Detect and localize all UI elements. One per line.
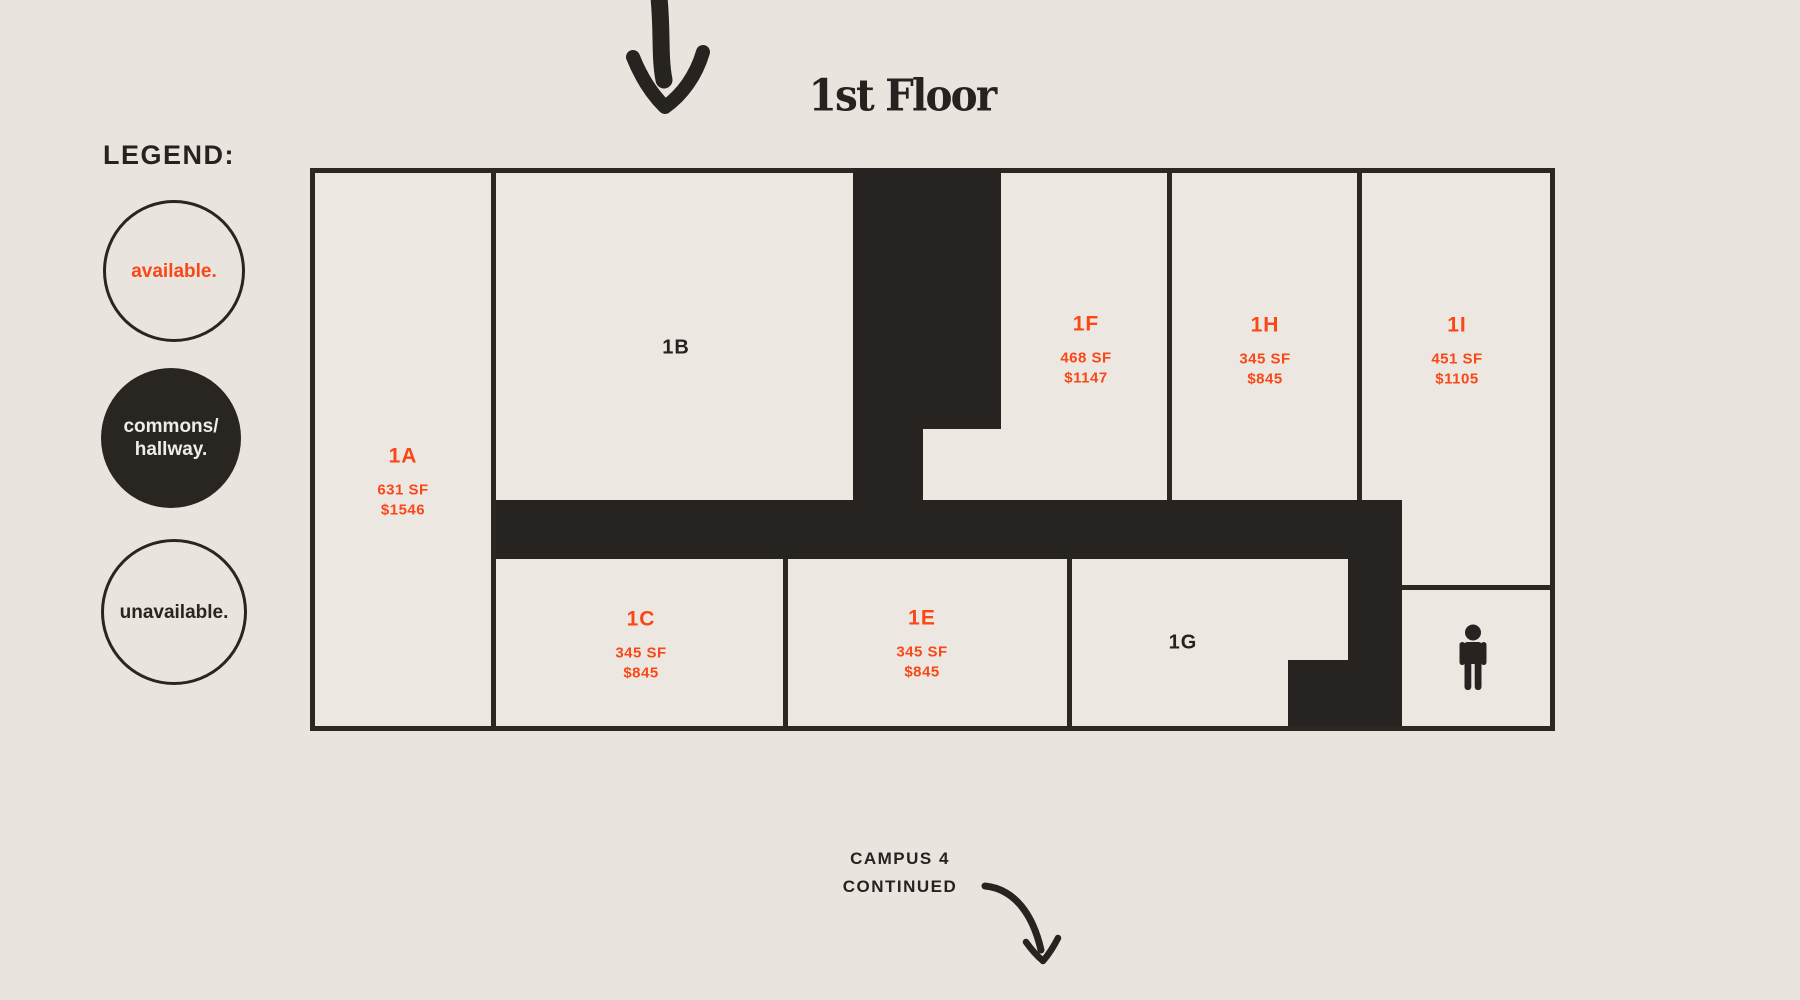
room-1g-id: 1G xyxy=(1169,632,1198,654)
room-label-1b: 1B xyxy=(662,337,690,360)
room-1f-id: 1F xyxy=(1060,313,1111,337)
legend-commons-line1: commons/ xyxy=(123,415,218,438)
legend-heading: LEGEND: xyxy=(103,140,235,171)
footer-line2: CONTINUED xyxy=(843,873,958,901)
room-1e-sf: 345 SF xyxy=(896,643,947,663)
floor-plan-page: 1st Floor LEGEND: available. commons/ ha… xyxy=(0,0,1800,1000)
room-1a-id: 1A xyxy=(377,445,428,469)
wall-1f-1h xyxy=(1167,168,1172,501)
hallway-notch-1g xyxy=(1288,660,1348,726)
room-1f-price: $1147 xyxy=(1060,368,1111,388)
room-1a-price: $1546 xyxy=(377,500,428,520)
wall-1e-1g xyxy=(1067,553,1072,726)
room-label-1e: 1E 345 SF $845 xyxy=(896,607,947,682)
room-1f-sf: 468 SF xyxy=(1060,349,1111,369)
hallway-vertical-narrow xyxy=(853,423,923,503)
room-1i-id: 1I xyxy=(1431,314,1482,338)
wall-1c-1e xyxy=(783,553,788,726)
page-title: 1st Floor xyxy=(809,71,996,122)
footer-line1: CAMPUS 4 xyxy=(843,845,958,873)
room-1i-price: $1105 xyxy=(1431,369,1482,389)
wall-1h-1i xyxy=(1357,168,1362,501)
legend-available-label: available. xyxy=(131,260,217,283)
legend-item-available: available. xyxy=(103,200,245,342)
room-label-1c: 1C 345 SF $845 xyxy=(615,608,666,683)
room-1a-sf: 631 SF xyxy=(377,481,428,501)
hallway-horizontal-main xyxy=(496,500,1402,559)
legend-item-unavailable: unavailable. xyxy=(101,539,247,685)
legend-item-commons-hallway: commons/ hallway. xyxy=(101,368,241,508)
room-label-1h: 1H 345 SF $845 xyxy=(1239,314,1290,389)
room-label-1i: 1I 451 SF $1105 xyxy=(1431,314,1482,389)
wall-outer-right xyxy=(1550,168,1555,731)
room-1c-sf: 345 SF xyxy=(615,644,666,664)
hallway-vertical-right xyxy=(1348,553,1402,726)
male-restroom-icon xyxy=(1456,624,1490,692)
room-1h-sf: 345 SF xyxy=(1239,350,1290,370)
room-label-1a: 1A 631 SF $1546 xyxy=(377,445,428,520)
room-1h-id: 1H xyxy=(1239,314,1290,338)
room-1h-price: $845 xyxy=(1239,369,1290,389)
room-1b-id: 1B xyxy=(662,337,690,359)
hallway-vertical-wide xyxy=(853,168,1001,429)
room-1i-sf: 451 SF xyxy=(1431,350,1482,370)
wall-restroom-top xyxy=(1402,585,1550,590)
room-label-1f: 1F 468 SF $1147 xyxy=(1060,313,1111,388)
room-1e-price: $845 xyxy=(896,662,947,682)
curved-arrow-down-right-icon xyxy=(975,875,1065,975)
footer-note: CAMPUS 4 CONTINUED xyxy=(843,845,958,901)
floor-plan: 1A 631 SF $1546 1B 1F 468 SF $1147 1H 34… xyxy=(310,168,1555,731)
room-1c-id: 1C xyxy=(615,608,666,632)
wall-1a-right xyxy=(491,168,496,731)
wall-outer-left xyxy=(310,168,315,731)
legend-commons-line2: hallway. xyxy=(135,438,208,461)
room-1c-price: $845 xyxy=(615,663,666,683)
legend-unavailable-label: unavailable. xyxy=(120,601,229,624)
wall-outer-bottom xyxy=(310,726,1555,731)
room-label-1g: 1G xyxy=(1169,632,1198,655)
curved-arrow-down-icon xyxy=(615,0,725,120)
room-1e-id: 1E xyxy=(896,607,947,631)
